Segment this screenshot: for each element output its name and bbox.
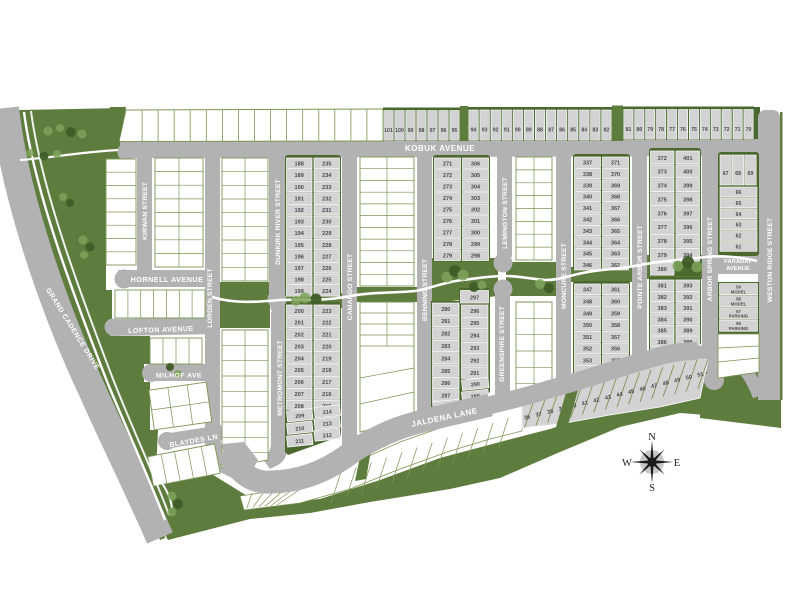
svg-text:284: 284 [441,356,450,362]
svg-text:207: 207 [295,392,304,398]
svg-text:371: 371 [611,161,620,167]
svg-text:73: 73 [713,127,719,133]
svg-text:344: 344 [583,240,593,246]
svg-text:93: 93 [482,128,488,134]
svg-text:306: 306 [471,162,480,168]
svg-text:193: 193 [295,220,304,226]
svg-text:358: 358 [611,323,620,329]
svg-text:339: 339 [583,183,592,189]
svg-text:67: 67 [723,171,729,177]
svg-text:61: 61 [736,245,742,251]
svg-text:85: 85 [570,128,576,134]
svg-text:346: 346 [583,263,592,269]
svg-text:221: 221 [322,333,331,339]
svg-text:189: 189 [295,173,304,179]
svg-text:298: 298 [471,254,480,260]
svg-text:361: 361 [611,288,620,294]
svg-text:68: 68 [735,171,741,177]
svg-text:392: 392 [683,295,692,301]
svg-text:233: 233 [322,185,331,191]
svg-text:76: 76 [680,127,686,133]
svg-text:286: 286 [441,381,450,387]
svg-text:88: 88 [537,128,543,134]
svg-text:198: 198 [295,278,304,284]
svg-text:378: 378 [658,239,667,245]
svg-text:401: 401 [683,156,692,162]
svg-text:KOBUK AVENUE: KOBUK AVENUE [405,144,475,153]
svg-text:220: 220 [322,344,331,350]
svg-text:65: 65 [736,201,742,207]
svg-text:294: 294 [470,334,479,340]
svg-text:398: 398 [683,197,692,203]
svg-text:201: 201 [295,321,304,327]
svg-text:229: 229 [322,231,331,237]
svg-text:78: 78 [658,127,664,133]
svg-text:213: 213 [323,421,333,428]
svg-text:79: 79 [647,127,653,133]
svg-text:225: 225 [322,278,331,284]
svg-text:87: 87 [548,128,554,134]
svg-text:296: 296 [470,309,479,315]
svg-text:359: 359 [611,311,620,317]
svg-text:280: 280 [441,307,450,313]
svg-text:194: 194 [295,231,305,237]
svg-text:203: 203 [295,344,304,350]
svg-text:235: 235 [322,162,331,168]
svg-text:66: 66 [736,190,742,196]
svg-text:384: 384 [658,317,668,323]
svg-text:381: 381 [658,283,667,289]
svg-text:297: 297 [470,296,479,302]
svg-text:348: 348 [583,300,592,306]
svg-text:295: 295 [470,321,479,327]
svg-text:400: 400 [683,170,692,176]
svg-text:ARBOR SPRING STREET: ARBOR SPRING STREET [707,216,714,301]
svg-text:364: 364 [611,240,621,246]
svg-text:218: 218 [322,368,331,374]
svg-text:370: 370 [611,172,620,178]
svg-text:283: 283 [441,344,450,350]
svg-text:211: 211 [295,438,304,445]
svg-text:S: S [649,483,655,494]
svg-text:212: 212 [323,433,333,440]
svg-text:299: 299 [471,242,480,248]
svg-text:345: 345 [583,252,592,258]
svg-text:389: 389 [683,329,692,335]
svg-text:DUNKIRK RIVER STREET: DUNKIRK RIVER STREET [275,178,282,264]
svg-text:369: 369 [611,183,620,189]
svg-text:217: 217 [322,380,331,386]
svg-text:72: 72 [724,127,730,133]
svg-text:281: 281 [441,319,450,325]
svg-text:367: 367 [611,206,620,212]
svg-text:86: 86 [559,128,565,134]
svg-text:BENNING STREET: BENNING STREET [422,258,429,321]
svg-text:100: 100 [395,128,404,134]
svg-text:302: 302 [471,208,480,214]
svg-text:E: E [674,458,680,469]
svg-text:205: 205 [295,368,304,374]
svg-text:219: 219 [322,356,331,362]
svg-text:N: N [648,432,656,443]
svg-text:279: 279 [443,254,452,260]
svg-text:70: 70 [746,127,752,133]
svg-text:191: 191 [295,196,304,202]
svg-text:98: 98 [419,128,425,134]
svg-text:HORNELL AVENUE: HORNELL AVENUE [131,275,204,284]
svg-text:188: 188 [295,162,304,168]
svg-text:342: 342 [583,218,592,224]
svg-text:391: 391 [683,306,692,312]
svg-text:300: 300 [471,231,480,237]
svg-text:197: 197 [295,266,304,272]
svg-text:W: W [622,458,632,469]
svg-text:340: 340 [583,195,592,201]
svg-text:353: 353 [583,359,592,365]
svg-text:MILHOF AVE: MILHOF AVE [156,373,202,380]
svg-text:282: 282 [441,332,450,338]
svg-text:77: 77 [669,127,675,133]
svg-text:KIRWAN STREET: KIRWAN STREET [142,181,149,240]
svg-text:399: 399 [683,184,692,190]
svg-text:LEMINGTON STREET: LEMINGTON STREET [502,176,509,248]
svg-text:372: 372 [658,156,667,162]
svg-text:80: 80 [637,127,643,133]
svg-text:385: 385 [658,329,667,335]
svg-text:379: 379 [658,253,667,259]
svg-text:357: 357 [611,335,620,341]
svg-text:390: 390 [683,317,692,323]
svg-text:GREENSPIRE STREET: GREENSPIRE STREET [499,305,506,382]
svg-text:287: 287 [441,394,450,400]
svg-text:397: 397 [683,211,692,217]
svg-text:64: 64 [736,212,742,218]
svg-text:272: 272 [443,173,452,179]
svg-text:393: 393 [683,283,692,289]
svg-text:271: 271 [443,162,452,168]
svg-text:74: 74 [702,127,708,133]
svg-text:206: 206 [295,380,304,386]
svg-text:375: 375 [658,197,667,203]
svg-text:226: 226 [322,266,331,272]
svg-text:227: 227 [322,254,331,260]
svg-text:301: 301 [471,219,480,225]
svg-text:383: 383 [658,306,667,312]
svg-text:368: 368 [611,195,620,201]
svg-text:291: 291 [470,371,479,377]
svg-text:303: 303 [471,196,480,202]
svg-text:97: 97 [430,128,436,134]
svg-text:276: 276 [443,219,452,225]
svg-text:89: 89 [526,128,532,134]
svg-text:84: 84 [581,128,587,134]
svg-text:349: 349 [583,311,592,317]
svg-text:PARKING: PARKING [729,314,749,319]
svg-text:PARKING: PARKING [729,326,749,331]
svg-text:CAMARGO STREET: CAMARGO STREET [347,253,354,320]
svg-text:200: 200 [295,309,304,315]
svg-text:METROMONT STREET: METROMONT STREET [277,339,284,415]
svg-text:290: 290 [471,382,481,389]
svg-text:195: 195 [295,243,304,249]
svg-text:190: 190 [295,185,304,191]
svg-text:AVENUE: AVENUE [726,266,750,272]
svg-text:360: 360 [611,300,620,306]
svg-text:231: 231 [322,208,331,214]
svg-text:232: 232 [322,196,331,202]
svg-text:92: 92 [493,128,499,134]
svg-text:71: 71 [735,127,741,133]
svg-text:373: 373 [658,170,667,176]
svg-text:382: 382 [658,295,667,301]
svg-text:274: 274 [443,196,453,202]
svg-text:230: 230 [322,220,331,226]
svg-text:82: 82 [604,128,610,134]
svg-text:83: 83 [593,128,599,134]
svg-text:305: 305 [471,173,480,179]
svg-text:192: 192 [295,208,304,214]
svg-text:209: 209 [295,413,305,420]
svg-text:224: 224 [322,289,332,295]
svg-text:228: 228 [322,243,331,249]
svg-text:94: 94 [471,128,477,134]
svg-text:351: 351 [583,335,592,341]
svg-text:MONCURE STREET: MONCURE STREET [561,242,568,309]
svg-text:91: 91 [504,128,510,134]
svg-text:292: 292 [470,358,479,364]
svg-text:MODEL: MODEL [731,302,747,307]
svg-text:376: 376 [658,211,667,217]
svg-text:356: 356 [611,347,620,353]
svg-text:338: 338 [583,172,592,178]
svg-text:380: 380 [658,267,667,273]
svg-text:101: 101 [384,128,393,134]
svg-text:214: 214 [323,409,333,416]
svg-text:341: 341 [583,206,592,212]
svg-text:75: 75 [691,127,697,133]
svg-text:352: 352 [583,347,592,353]
svg-text:304: 304 [471,185,481,191]
svg-text:MODEL: MODEL [731,289,747,294]
svg-text:366: 366 [611,218,620,224]
svg-text:POINTE ARBOR STREET: POINTE ARBOR STREET [637,225,644,309]
svg-text:99: 99 [408,128,414,134]
svg-text:395: 395 [683,239,692,245]
svg-text:223: 223 [322,309,331,315]
svg-text:278: 278 [443,242,452,248]
svg-text:81: 81 [626,127,632,133]
svg-text:293: 293 [470,346,479,352]
svg-text:234: 234 [322,173,332,179]
svg-text:386: 386 [658,340,667,346]
svg-text:210: 210 [295,426,305,433]
svg-text:WESTON RIDGE STREET: WESTON RIDGE STREET [767,217,774,302]
svg-text:365: 365 [611,229,620,235]
svg-text:196: 196 [295,254,304,260]
svg-text:273: 273 [443,185,452,191]
svg-text:62: 62 [736,234,742,240]
svg-text:216: 216 [322,392,331,398]
svg-text:LORDEN STREET: LORDEN STREET [207,268,214,328]
svg-text:FARADAY: FARADAY [724,259,752,265]
svg-text:343: 343 [583,229,592,235]
svg-text:363: 363 [611,252,620,258]
svg-text:377: 377 [658,225,667,231]
svg-text:347: 347 [583,288,592,294]
svg-text:337: 337 [583,161,592,167]
svg-text:285: 285 [441,369,450,375]
svg-text:374: 374 [658,184,668,190]
svg-text:204: 204 [295,356,305,362]
svg-text:90: 90 [515,128,521,134]
svg-text:222: 222 [322,321,331,327]
svg-text:396: 396 [683,225,692,231]
svg-text:63: 63 [736,223,742,229]
svg-text:96: 96 [441,128,447,134]
svg-text:202: 202 [295,333,304,339]
svg-text:95: 95 [452,128,458,134]
svg-text:277: 277 [443,231,452,237]
svg-text:350: 350 [583,323,592,329]
svg-text:69: 69 [748,171,754,177]
svg-text:275: 275 [443,208,452,214]
